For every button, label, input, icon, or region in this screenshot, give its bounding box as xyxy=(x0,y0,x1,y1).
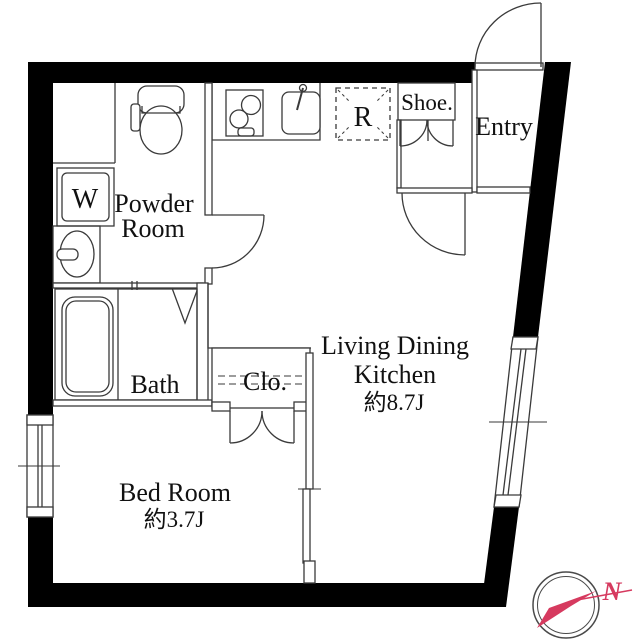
refrigerator-label: R xyxy=(354,102,373,133)
compass-needle xyxy=(537,591,596,628)
bath-powder-divider xyxy=(53,283,203,288)
toilet-lever xyxy=(131,104,140,131)
room-labels: Powder Room Bath Clo. Bed Room 約3.7J Liv… xyxy=(72,90,533,532)
wall-bottom xyxy=(28,583,500,607)
partition-stub xyxy=(304,561,315,583)
entry-door-arc xyxy=(475,3,541,67)
ldk-window xyxy=(489,337,547,507)
wall-right-upper-slanted xyxy=(513,62,571,337)
entry-label: Entry xyxy=(475,112,533,141)
bedroom-window xyxy=(18,415,60,517)
compass: N xyxy=(533,572,632,638)
vanity-faucet xyxy=(57,249,78,260)
ldk-boundary xyxy=(208,283,311,348)
entry-step xyxy=(477,187,530,193)
powder-room-wall-lower xyxy=(205,268,212,284)
powder-room-label-line2: Room xyxy=(121,214,185,243)
wall-left-upper xyxy=(28,62,53,415)
bath-label: Bath xyxy=(130,370,179,399)
shoe-cabinet-label: Shoe. xyxy=(401,90,453,115)
partition-sliding-door xyxy=(303,489,310,563)
closet-label: Clo. xyxy=(243,367,287,396)
ldk-area-label: 約8.7J xyxy=(364,390,425,415)
hall-door-arc xyxy=(402,193,465,255)
ldk-label-line2: Kitchen xyxy=(354,360,436,389)
bedroom-label: Bed Room xyxy=(119,478,231,507)
bath-right-wall xyxy=(197,283,208,402)
closet-jamb-left xyxy=(212,402,230,411)
floorplan-canvas: N Powder Room Bath Clo. Bed Room 約3.7J L… xyxy=(0,0,640,640)
wall-right-lower-slanted xyxy=(481,507,519,607)
entry-door-sill xyxy=(475,63,543,70)
interior-linework xyxy=(18,3,547,583)
closet-double-doors xyxy=(230,411,294,443)
bath-folding-door xyxy=(172,288,198,323)
partition-fixed xyxy=(306,353,313,489)
ldk-label-line1: Living Dining xyxy=(321,331,469,360)
bath-bottom-wall xyxy=(53,400,212,406)
wall-top xyxy=(28,62,475,83)
bedroom-area-label: 約3.7J xyxy=(144,507,205,532)
washer-label: W xyxy=(72,184,99,215)
powder-room-wall-upper xyxy=(205,83,212,215)
floorplan-svg: N Powder Room Bath Clo. Bed Room 約3.7J L… xyxy=(0,0,640,640)
bathtub-outer xyxy=(62,297,113,396)
shoe-cabinet-doors xyxy=(400,120,453,146)
compass-north-label: N xyxy=(602,577,623,606)
powder-room-door-arc xyxy=(212,215,264,268)
hall-door-frame xyxy=(397,188,472,193)
